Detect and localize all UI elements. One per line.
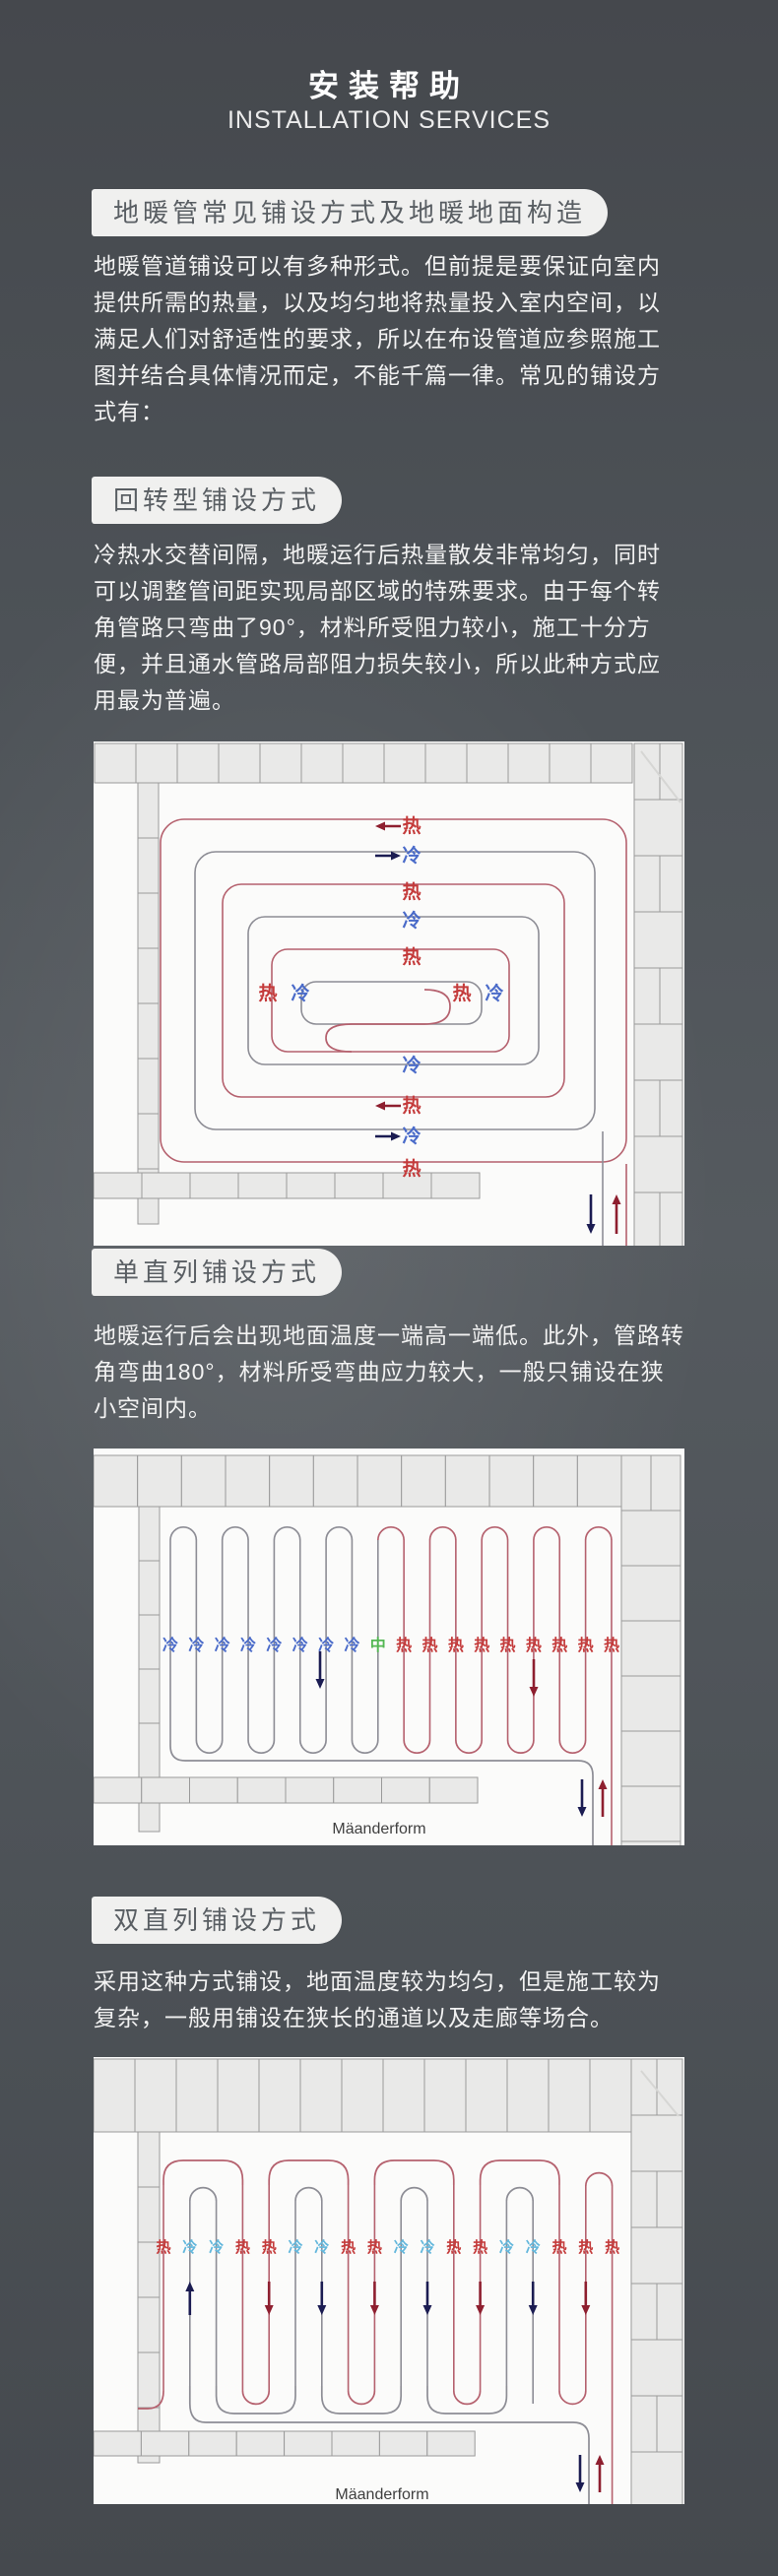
page-title: 安装帮助: [0, 61, 778, 105]
svg-text:冷: 冷: [526, 2238, 541, 2256]
svg-text:热: 热: [402, 945, 421, 968]
svg-text:热: 热: [258, 982, 277, 1004]
svg-text:热: 热: [341, 2238, 356, 2256]
double-paragraph: 采用这种方式铺设，地面温度较为均匀，但是施工较为 复杂，一般用铺设在狭长的通道以…: [94, 1964, 729, 2036]
single-row-layout-diagram: 冷冷冷冷冷冷冷冷中热热热热热热热热热Mäanderform: [94, 1449, 684, 1845]
spiral-paragraph: 冷热水交替间隔，地暖运行后热量散发非常均匀，同时 可以调整管间距实现局部区域的特…: [94, 537, 729, 719]
svg-text:冷: 冷: [499, 2238, 514, 2256]
svg-text:热: 热: [452, 982, 471, 1004]
svg-text:热: 热: [367, 2238, 382, 2256]
svg-text:热: 热: [551, 2238, 566, 2256]
svg-text:热: 热: [604, 1636, 619, 1654]
svg-text:冷: 冷: [188, 1636, 204, 1654]
section-heading-double: 双直列铺设方式: [92, 1897, 342, 1944]
svg-text:冷: 冷: [402, 844, 421, 867]
svg-text:Mäanderform: Mäanderform: [332, 1821, 425, 1837]
section-heading-spiral: 回转型铺设方式: [92, 477, 342, 524]
svg-text:冷: 冷: [291, 982, 309, 1004]
installation-help-page: 安装帮助 INSTALLATION SERVICES 地暖管常见铺设方式及地暖地…: [0, 0, 778, 2576]
intro-paragraph: 地暖管道铺设可以有多种形式。但前提是要保证向室内 提供所需的热量，以及均匀地将热…: [94, 248, 729, 430]
svg-text:热: 热: [235, 2238, 250, 2256]
svg-text:冷: 冷: [394, 2238, 409, 2256]
svg-text:热: 热: [156, 2238, 170, 2256]
svg-text:热: 热: [526, 1636, 542, 1654]
svg-text:冷: 冷: [420, 2238, 434, 2256]
banner-heading: 地暖管常见铺设方式及地暖地面构造: [92, 189, 608, 236]
svg-text:热: 热: [446, 2238, 461, 2256]
svg-text:冷: 冷: [344, 1636, 359, 1654]
section-heading-single: 单直列铺设方式: [92, 1249, 342, 1296]
svg-text:冷: 冷: [266, 1636, 282, 1654]
svg-text:冷: 冷: [182, 2238, 197, 2256]
svg-text:热: 热: [396, 1636, 412, 1654]
svg-text:冷: 冷: [215, 1636, 230, 1654]
svg-text:冷: 冷: [292, 1636, 308, 1654]
svg-text:冷: 冷: [209, 2238, 224, 2256]
svg-text:冷: 冷: [402, 909, 421, 932]
spiral-layout-diagram: 热冷热冷热热冷热冷冷热冷热: [94, 741, 684, 1246]
svg-text:热: 热: [500, 1636, 516, 1654]
page-subtitle: INSTALLATION SERVICES: [0, 106, 778, 135]
svg-text:热: 热: [402, 1094, 421, 1117]
svg-text:Mäanderform: Mäanderform: [335, 2486, 428, 2503]
double-row-layout-diagram: 热冷冷热热冷冷热热冷冷热热冷冷热热热Mäanderform: [94, 2057, 684, 2504]
svg-text:冷: 冷: [162, 1636, 178, 1654]
svg-text:冷: 冷: [314, 2238, 329, 2256]
svg-text:中: 中: [370, 1636, 386, 1654]
svg-text:冷: 冷: [288, 2238, 302, 2256]
svg-text:热: 热: [421, 1636, 437, 1654]
svg-text:热: 热: [578, 2238, 593, 2256]
svg-text:热: 热: [474, 1636, 489, 1654]
svg-text:冷: 冷: [485, 982, 503, 1004]
svg-text:热: 热: [578, 1636, 594, 1654]
svg-text:热: 热: [402, 1157, 421, 1180]
svg-text:热: 热: [402, 814, 421, 837]
svg-text:热: 热: [448, 1636, 464, 1654]
svg-text:热: 热: [605, 2238, 619, 2256]
svg-text:热: 热: [402, 880, 421, 903]
svg-text:热: 热: [262, 2238, 277, 2256]
svg-text:冷: 冷: [240, 1636, 256, 1654]
svg-text:冷: 冷: [402, 1054, 421, 1076]
svg-text:热: 热: [551, 1636, 567, 1654]
svg-text:热: 热: [473, 2238, 487, 2256]
single-paragraph: 地暖运行后会出现地面温度一端高一端低。此外，管路转 角弯曲180°，材料所受弯曲…: [94, 1318, 729, 1427]
svg-text:冷: 冷: [402, 1125, 421, 1147]
